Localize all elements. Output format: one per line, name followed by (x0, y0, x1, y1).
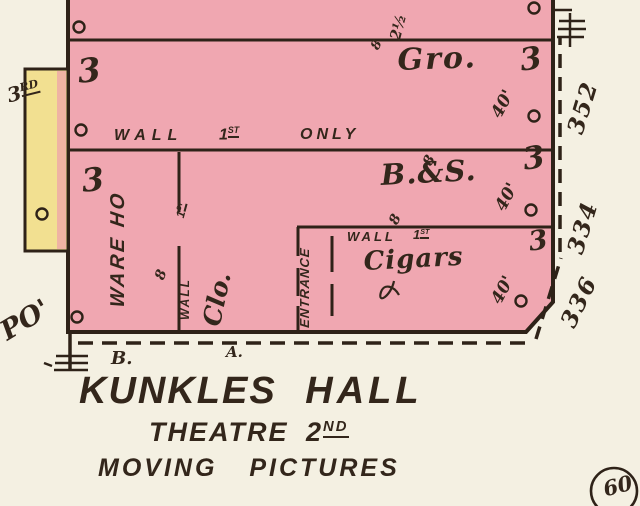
floors-gro-right: 3 (518, 43, 544, 77)
caption-name: KUNKLES HALL (79, 372, 423, 410)
wall-first-sup: ST (420, 228, 429, 239)
floors-warehouse: 3 (80, 163, 105, 197)
caption-moving: MOVING (98, 454, 217, 482)
floors-gro-left: 3 (76, 53, 102, 88)
warehouse-wall-first: 1ST (174, 201, 190, 219)
caption-moving-pictures: MOVING PICTURES (98, 456, 400, 481)
lot-letter-b: B. (111, 350, 132, 368)
fence-symbol-top-right (552, 10, 586, 47)
floors-cigars: 3 (527, 226, 549, 255)
wall-first-only-num: 1 (219, 126, 228, 143)
lot-letter-a: A. (226, 345, 243, 360)
caption-theatre-num: 2 (306, 417, 323, 447)
wall-first-only-first: 1ST (219, 126, 239, 143)
wall-first-word-wall: WALL (347, 230, 396, 243)
adjacent-building-pink-strip (57, 71, 66, 249)
sanborn-map: 3RD PO' 2½ 8 3 Gro. 3 40' WALL 1ST ONLY … (0, 0, 640, 506)
sheet-badge-number: 60 (601, 472, 634, 499)
room-label-warehouse: WARE HO (108, 189, 128, 308)
caption-name-word2: HALL (305, 370, 422, 412)
fence-symbol-bottom-left (44, 356, 88, 370)
caption-theatre-sup: ND (323, 419, 348, 438)
wall-first-only-sup: ST (228, 125, 239, 138)
room-label-cigars: Cigars (363, 244, 464, 275)
room-label-gro: Gro. (397, 43, 477, 76)
warehouse-wall-word: WALL (179, 278, 191, 320)
caption-pictures: PICTURES (249, 454, 399, 482)
caption-name-word1: KUNKLES (79, 370, 277, 412)
floors-bs: 3 (521, 142, 547, 176)
caption-theatre: THEATRE 2ND (149, 419, 349, 446)
wall-first-only-word-only: ONLY (300, 127, 359, 143)
entrance-label: ENTRANCE (298, 247, 311, 329)
wall-first-first: 1ST (413, 228, 429, 241)
street-3rd-sup: RD (18, 77, 40, 97)
caption-theatre-word: THEATRE (149, 417, 289, 447)
wall-first-only-word-wall: WALL (114, 128, 183, 144)
